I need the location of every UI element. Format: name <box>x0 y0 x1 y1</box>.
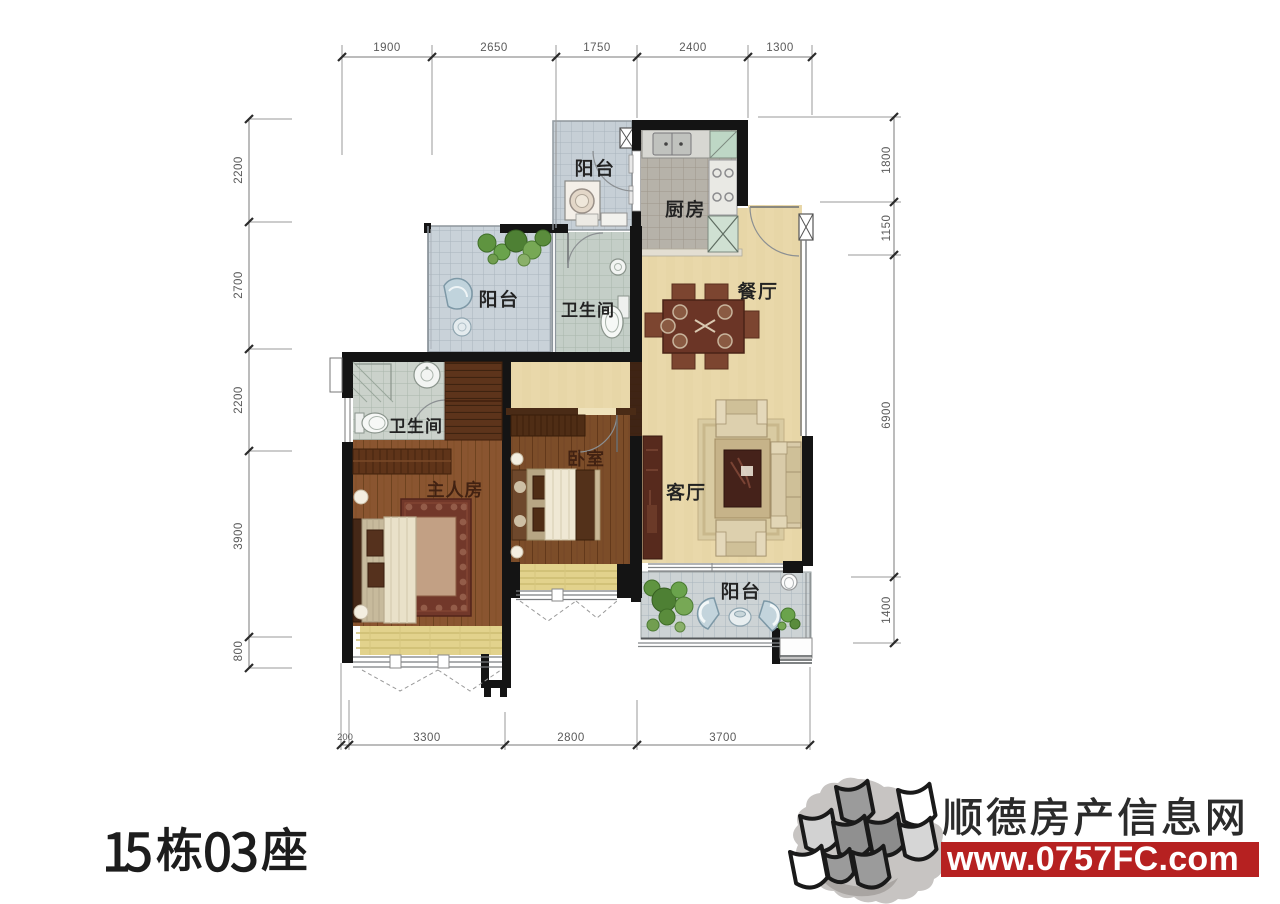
svg-text:2200: 2200 <box>233 156 245 184</box>
svg-text:3700: 3700 <box>709 732 737 744</box>
svg-text:2400: 2400 <box>679 42 707 54</box>
svg-text:1800: 1800 <box>881 146 893 174</box>
svg-text:6900: 6900 <box>881 401 893 429</box>
svg-text:1900: 1900 <box>373 42 401 54</box>
svg-text:3300: 3300 <box>413 732 441 744</box>
svg-text:1750: 1750 <box>583 42 611 54</box>
svg-text:200: 200 <box>337 732 353 743</box>
svg-text:1300: 1300 <box>766 42 794 54</box>
svg-text:2800: 2800 <box>557 732 585 744</box>
svg-text:2200: 2200 <box>233 386 245 414</box>
svg-text:3900: 3900 <box>233 522 245 550</box>
svg-text:1400: 1400 <box>881 596 893 624</box>
svg-text:1150: 1150 <box>881 215 893 242</box>
svg-text:800: 800 <box>233 641 245 662</box>
svg-text:www.0757FC.com: www.0757FC.com <box>946 840 1239 878</box>
svg-text:2700: 2700 <box>233 271 245 299</box>
svg-text:2650: 2650 <box>480 42 508 54</box>
